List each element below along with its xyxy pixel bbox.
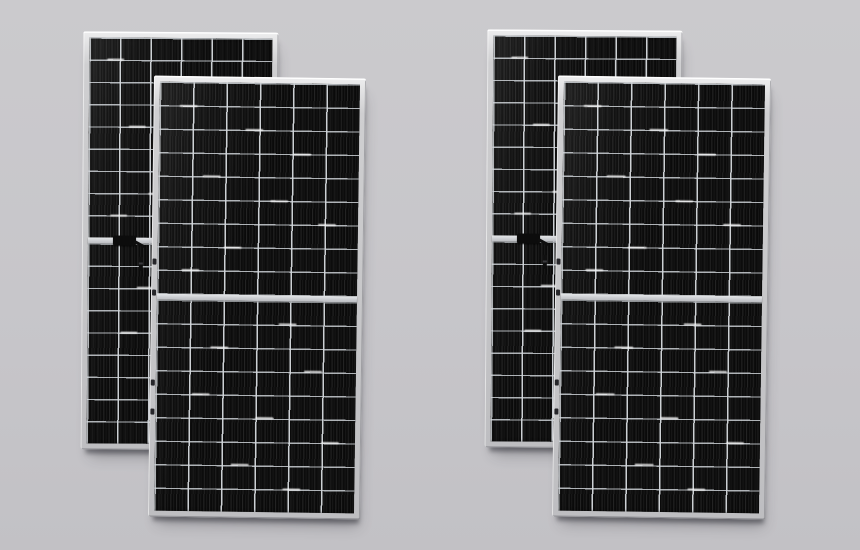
frame-clamp xyxy=(556,289,560,295)
product-stage xyxy=(0,0,860,550)
solar-panel-front-right xyxy=(552,76,771,520)
frame-clamp xyxy=(556,259,560,265)
cell-grid xyxy=(558,82,765,514)
junction-connector xyxy=(139,257,143,271)
solar-panel-front-left xyxy=(148,76,366,520)
cell-half-bottom xyxy=(154,299,357,513)
cell-half-bottom xyxy=(558,299,762,513)
frame-clamp xyxy=(152,259,156,265)
junction-box xyxy=(517,233,540,243)
cell-grid xyxy=(154,82,360,514)
frame-clamp xyxy=(150,409,154,415)
cell-half-top xyxy=(157,82,360,296)
frame-clamp xyxy=(555,380,559,386)
frame-clamp xyxy=(151,380,155,386)
frame-clamp xyxy=(152,289,156,295)
junction-connector xyxy=(543,255,547,269)
cell-half-top xyxy=(561,82,765,296)
frame-clamp xyxy=(554,409,558,415)
junction-box xyxy=(113,235,136,245)
